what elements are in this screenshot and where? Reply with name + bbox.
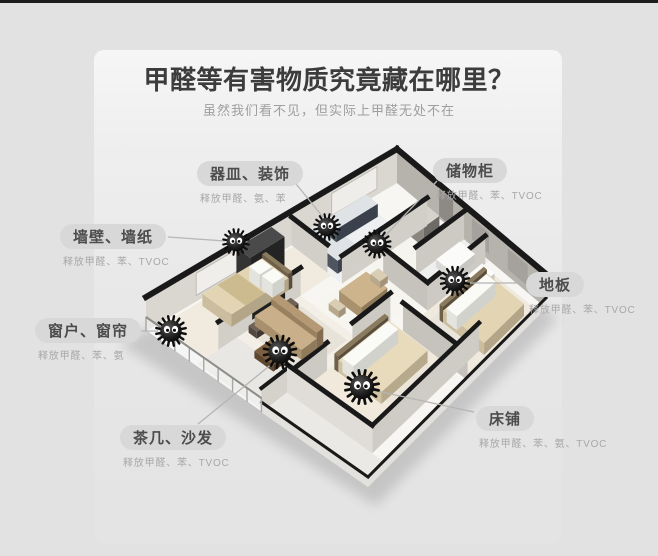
callout-pill-tea-table-sofa: 茶几、沙发 xyxy=(120,425,226,450)
callout-title: 地板 xyxy=(539,277,571,294)
callout-pill-wall-wallpaper: 墙壁、墙纸 xyxy=(60,224,166,249)
callout-title: 器皿、装饰 xyxy=(210,166,290,183)
callout-connector-line xyxy=(168,237,225,241)
callout-window-curtain: 窗户、窗帘 释放甲醛、苯、氨 xyxy=(35,318,141,362)
callout-sublabel: 释放甲醛、苯、氨、TVOC xyxy=(479,435,607,450)
infographic-canvas: 甲醛等有害物质究竟藏在哪里？ 虽然我们看不见，但实际上甲醛无处不在 器皿、装饰 … xyxy=(0,0,658,556)
callout-tea-table-sofa: 茶几、沙发 释放甲醛、苯、TVOC xyxy=(120,425,230,469)
callout-title: 储物柜 xyxy=(446,163,494,180)
top-edge-bar xyxy=(0,0,658,3)
callout-sublabel: 释放甲醛、氨、苯 xyxy=(200,190,303,205)
callout-title: 墙壁、墙纸 xyxy=(73,229,153,246)
callout-bed: 床铺 释放甲醛、苯、氨、TVOC xyxy=(476,406,607,450)
callout-pill-bed: 床铺 xyxy=(476,406,534,431)
callout-sublabel: 释放甲醛、苯、TVOC xyxy=(123,454,230,469)
page-subtitle: 虽然我们看不见，但实际上甲醛无处不在 xyxy=(0,100,658,119)
callout-sublabel: 释放甲醛、苯、TVOC xyxy=(529,301,636,316)
callout-pill-dishes-decor: 器皿、装饰 xyxy=(197,161,303,186)
callout-dishes-decor: 器皿、装饰 释放甲醛、氨、苯 xyxy=(197,161,303,205)
page-title: 甲醛等有害物质究竟藏在哪里？ xyxy=(0,60,658,97)
callout-title: 窗户、窗帘 xyxy=(48,323,128,340)
callout-title: 床铺 xyxy=(489,411,521,428)
callout-storage-cabinet: 储物柜 释放甲醛、苯、TVOC xyxy=(433,158,543,202)
callout-sublabel: 释放甲醛、苯、氨 xyxy=(38,347,141,362)
callout-wall-wallpaper: 墙壁、墙纸 释放甲醛、苯、TVOC xyxy=(60,224,170,268)
callout-title: 茶几、沙发 xyxy=(133,430,213,447)
callout-floor: 地板 释放甲醛、苯、TVOC xyxy=(526,272,636,316)
callout-sublabel: 释放甲醛、苯、TVOC xyxy=(63,253,170,268)
callout-sublabel: 释放甲醛、苯、TVOC xyxy=(436,187,543,202)
callout-pill-floor: 地板 xyxy=(526,272,584,297)
callout-pill-window-curtain: 窗户、窗帘 xyxy=(35,318,141,343)
callout-pill-storage-cabinet: 储物柜 xyxy=(433,158,507,183)
